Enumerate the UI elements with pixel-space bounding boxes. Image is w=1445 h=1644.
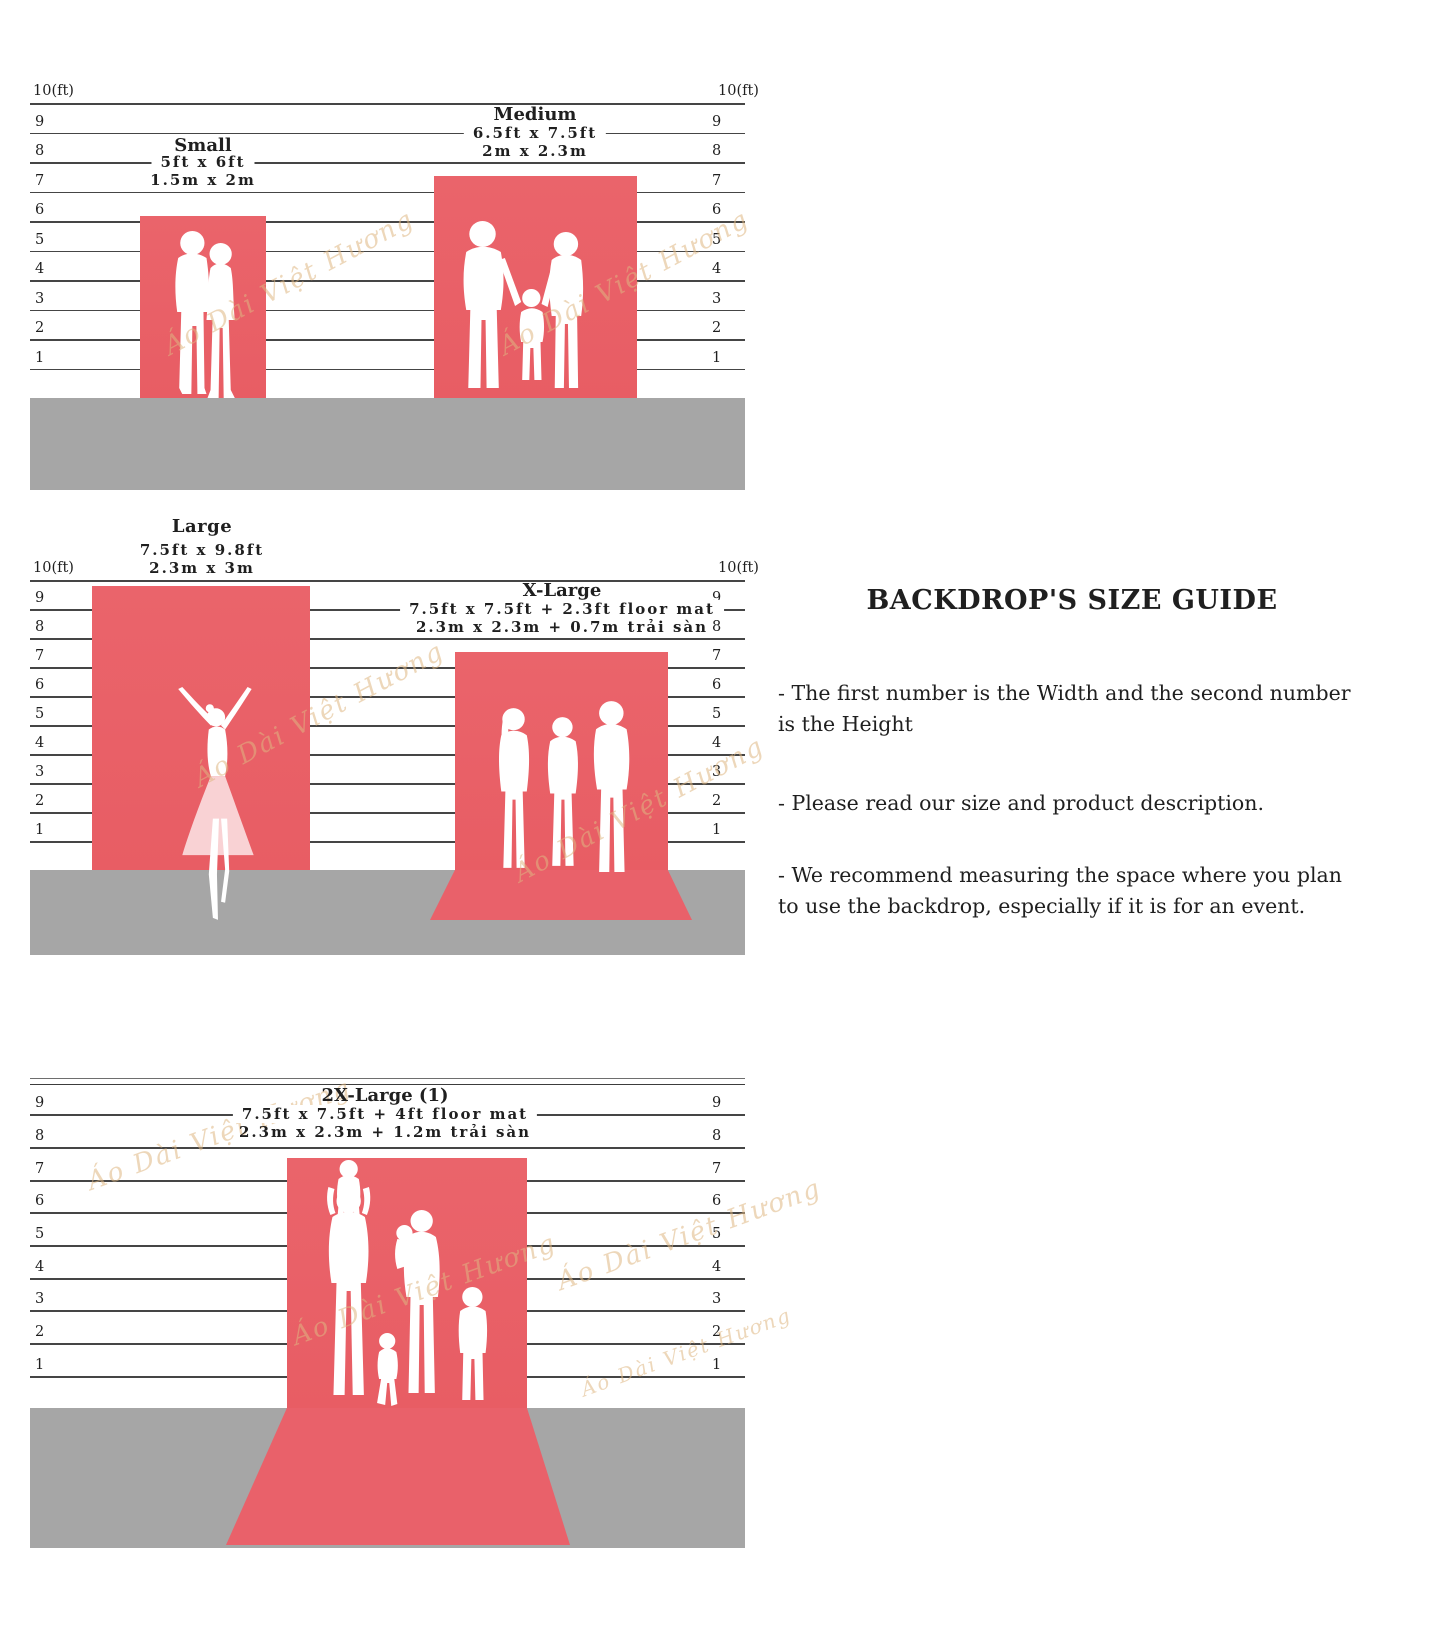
ruler-line	[30, 280, 745, 282]
ruler-tick-label: 2	[712, 793, 721, 810]
ruler-line	[30, 310, 745, 312]
ruler-tick-label: 1	[712, 1357, 721, 1374]
page-title: BACKDROP'S SIZE GUIDE	[778, 585, 1366, 617]
ruler-tick-label: 1	[35, 350, 44, 367]
ruler-tick-label: 7	[35, 173, 44, 190]
ruler-tick-label: 1	[35, 822, 44, 839]
ruler-tick-label: 8	[35, 619, 44, 636]
ruler-tick-label: 8	[712, 619, 721, 636]
ruler-tick-label: 7	[712, 1161, 721, 1178]
ruler-tick-label: 2	[35, 793, 44, 810]
ruler-line	[30, 133, 745, 135]
ruler-tick-label: 8	[35, 143, 44, 160]
ruler-tick-label: 4	[712, 261, 721, 278]
ruler-tick-label: 2	[35, 320, 44, 337]
ruler-line	[30, 339, 745, 341]
ruler-tick-label: 4	[712, 735, 721, 752]
ruler-tick-label: 3	[35, 291, 44, 308]
ruler-tick-label: 4	[35, 261, 44, 278]
info-bullet: - We recommend measuring the space where…	[778, 860, 1366, 924]
ruler-tick-label: 8	[712, 1128, 721, 1145]
size-imperial-large: 7.5ft x 9.8ft	[140, 541, 264, 559]
ruler-tick-label: 7	[35, 1161, 44, 1178]
ruler-tick-label: 6	[712, 202, 721, 219]
ruler-top-label: 10(ft)	[33, 560, 74, 576]
ruler-tick-label: 6	[712, 677, 721, 694]
info-panel: BACKDROP'S SIZE GUIDE - The first number…	[778, 585, 1366, 945]
ruler-tick-label: 4	[712, 1259, 721, 1276]
couple-silhouette	[158, 228, 254, 406]
ruler-line	[30, 369, 745, 371]
ruler-tick-label: 3	[712, 764, 721, 781]
family-of-five-silhouette	[300, 1155, 518, 1410]
ruler-tick-label: 5	[712, 1226, 721, 1243]
size-chart-large-xlarge: 10(ft) 10(ft) 9 8 7 6 5 4 3 2 1 9 8 7 6 …	[30, 515, 745, 965]
ruler-tick-label: 6	[35, 677, 44, 694]
ruler-tick-label: 8	[35, 1128, 44, 1145]
ruler-tick-label: 7	[712, 648, 721, 665]
ruler-line	[30, 103, 745, 105]
ruler-tick-label: 4	[35, 1259, 44, 1276]
ruler-tick-label: 6	[712, 1193, 721, 1210]
family-trio-silhouette	[485, 687, 648, 883]
ruler-tick-label: 2	[35, 1324, 44, 1341]
size-name-xlarge: X-Large	[523, 581, 602, 601]
ruler-tick-label: 9	[712, 1095, 721, 1112]
ruler-tick-label: 3	[712, 1291, 721, 1308]
ruler-tick-label: 9	[712, 114, 721, 131]
watermark-text: Áo Dài Việt Hương	[578, 1303, 795, 1402]
size-name-medium: Medium	[494, 105, 577, 125]
ruler-tick-label: 8	[712, 143, 721, 160]
size-imperial-2xlarge: 7.5ft x 7.5ft + 4ft floor mat	[233, 1105, 537, 1123]
ruler-tick-label: 2	[712, 1324, 721, 1341]
info-bullet: - The first number is the Width and the …	[778, 678, 1366, 742]
ruler-top-label: 10(ft)	[718, 560, 759, 576]
ballerina-silhouette	[168, 687, 270, 925]
size-name-2xlarge: 2X-Large (1)	[322, 1086, 449, 1106]
info-bullet: - Please read our size and product descr…	[778, 788, 1366, 820]
size-metric-2xlarge: 2.3m x 2.3m + 1.2m trải sàn	[239, 1123, 531, 1141]
ruler-line	[30, 1147, 745, 1149]
ruler-tick-label: 3	[712, 291, 721, 308]
ruler-tick-label: 1	[712, 350, 721, 367]
ruler-tick-label: 5	[35, 1226, 44, 1243]
size-chart-2xlarge: 9 8 7 6 5 4 3 2 1 9 8 7 6 5 4 3 2 1	[30, 1060, 745, 1550]
ruler-line	[30, 192, 745, 194]
ruler-tick-label: 1	[35, 1357, 44, 1374]
backdrop-size-guide-image: 10(ft) 10(ft) 9 8 7 6 5 4 3 2 1 9 8 7 6 …	[0, 0, 1445, 1644]
ruler-tick-label: 5	[712, 232, 721, 249]
ruler-top-label: 10(ft)	[33, 83, 74, 99]
ruler-line	[30, 221, 745, 223]
ruler-tick-label: 4	[35, 735, 44, 752]
ruler-tick-label: 6	[35, 1193, 44, 1210]
size-imperial-small: 5ft x 6ft	[151, 153, 254, 171]
ruler-tick-label: 3	[35, 764, 44, 781]
ruler-line	[30, 1078, 745, 1085]
size-metric-large: 2.3m x 3m	[149, 559, 255, 577]
size-name-large: Large	[172, 518, 232, 536]
size-metric-small: 1.5m x 2m	[150, 171, 256, 189]
ruler-tick-label: 5	[35, 706, 44, 723]
size-imperial-xlarge: 7.5ft x 7.5ft + 2.3ft floor mat	[400, 600, 724, 618]
ruler-tick-label: 3	[35, 1291, 44, 1308]
ruler-tick-label: 2	[712, 320, 721, 337]
size-imperial-medium: 6.5ft x 7.5ft	[464, 124, 606, 142]
ruler-tick-label: 9	[35, 590, 44, 607]
size-chart-small-medium: 10(ft) 10(ft) 9 8 7 6 5 4 3 2 1 9 8 7 6 …	[30, 78, 745, 490]
ruler-tick-label: 9	[35, 1095, 44, 1112]
studio-floor	[30, 398, 745, 490]
family-of-three-silhouette	[452, 220, 630, 402]
size-metric-medium: 2m x 2.3m	[482, 142, 588, 160]
ruler-line	[30, 251, 745, 253]
ruler-tick-label: 6	[35, 202, 44, 219]
ruler-tick-label: 5	[712, 706, 721, 723]
ruler-tick-label: 1	[712, 822, 721, 839]
size-metric-xlarge: 2.3m x 2.3m + 0.7m trải sàn	[416, 618, 708, 636]
ruler-line	[30, 162, 745, 164]
ruler-tick-label: 7	[712, 173, 721, 190]
ruler-top-label: 10(ft)	[718, 83, 759, 99]
ruler-tick-label: 5	[35, 232, 44, 249]
ruler-tick-label: 7	[35, 648, 44, 665]
ruler-line	[30, 580, 745, 582]
ruler-tick-label: 9	[35, 114, 44, 131]
